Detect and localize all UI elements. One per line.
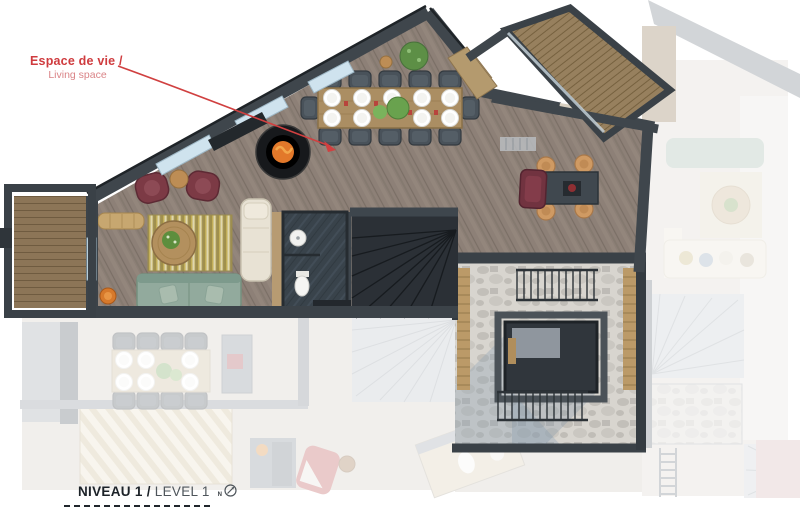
- bathroom: [272, 212, 351, 316]
- fringe-mat: [500, 137, 536, 151]
- ghost-stairs-below: [352, 318, 456, 402]
- suspended-fireplace: [256, 125, 310, 179]
- label-dashed-underline: [64, 505, 210, 507]
- north-compass: N: [218, 483, 238, 498]
- compass-icon: [223, 483, 238, 498]
- sofa-pillow: [205, 285, 225, 305]
- left-balcony: [0, 188, 92, 314]
- table-plant: [387, 97, 409, 119]
- toilet: [295, 276, 309, 296]
- ghost-dining-set: [112, 333, 210, 409]
- side-table: [170, 170, 188, 188]
- chaise-longue: [241, 199, 271, 281]
- level-label: NIVEAU 1 / LEVEL 1 N: [78, 483, 238, 499]
- table-plant-small: [373, 105, 387, 119]
- bathroom-wood-wall: [272, 212, 283, 316]
- rattan-bench: [98, 213, 144, 229]
- coffee-table-plant: [162, 231, 180, 249]
- level-name-fr: NIVEAU 1 /: [78, 484, 151, 499]
- annotation-living-space: Espace de vie / Living space: [30, 54, 125, 81]
- terrace: [452, 258, 646, 450]
- ghost-pink-rug: [756, 440, 800, 498]
- corner-plant: [400, 42, 428, 70]
- annotation-title: Espace de vie /: [30, 54, 125, 68]
- sofa-pillow: [159, 284, 179, 304]
- staircase: [349, 212, 458, 318]
- ghost-fireplace: [250, 438, 296, 488]
- ghost-right-stairs: [650, 294, 744, 378]
- sofa: [137, 274, 241, 310]
- small-side-table: [380, 56, 392, 68]
- ghost-stone-strip: [640, 384, 742, 444]
- floor-plan-page: Espace de vie / Living space NIVEAU 1 / …: [0, 0, 800, 517]
- ghost-beamed-roof: [80, 408, 232, 484]
- games-armchair: [519, 169, 547, 208]
- level-name-en: LEVEL 1: [155, 484, 210, 499]
- ghost-stump-stool: [339, 456, 355, 472]
- north-letter: N: [218, 492, 222, 498]
- left-balcony-deck: [14, 196, 86, 308]
- annotation-subtitle: Living space: [30, 69, 125, 81]
